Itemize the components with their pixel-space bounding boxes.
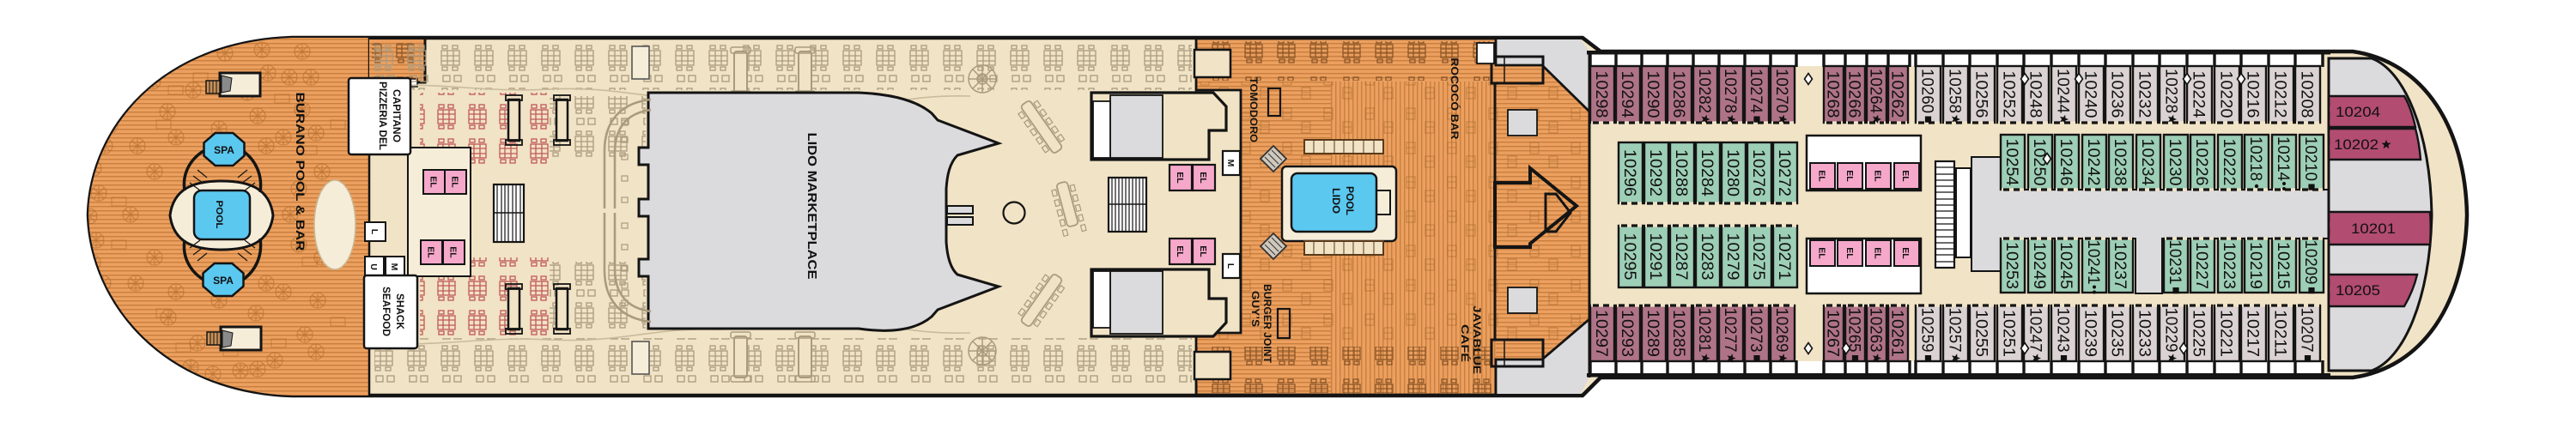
svg-text:10279: 10279 bbox=[1723, 233, 1741, 281]
svg-text:10271: 10271 bbox=[1775, 233, 1793, 281]
svg-text:10274: 10274 bbox=[1747, 69, 1765, 113]
svg-text:EL: EL bbox=[1175, 245, 1185, 257]
svg-text:10275: 10275 bbox=[1749, 233, 1767, 281]
svg-text:LIDO MARKETPLACE: LIDO MARKETPLACE bbox=[805, 132, 819, 280]
svg-text:10295: 10295 bbox=[1620, 233, 1638, 281]
svg-text:10241: 10241 bbox=[2084, 240, 2102, 285]
svg-text:10293: 10293 bbox=[1618, 310, 1636, 357]
svg-text:10226: 10226 bbox=[2192, 139, 2210, 186]
svg-text:LIDO: LIDO bbox=[1330, 188, 1340, 214]
svg-text:EL: EL bbox=[450, 176, 460, 188]
svg-text:10220: 10220 bbox=[2217, 71, 2235, 118]
svg-text:10289: 10289 bbox=[1643, 310, 1662, 357]
svg-text:L: L bbox=[1225, 263, 1236, 269]
svg-text:10209: 10209 bbox=[2301, 240, 2319, 285]
svg-text:10287: 10287 bbox=[1672, 233, 1690, 281]
svg-text:EL: EL bbox=[1817, 247, 1827, 259]
svg-text:10243: 10243 bbox=[2054, 308, 2072, 353]
svg-text:10216: 10216 bbox=[2244, 71, 2262, 118]
svg-text:10205: 10205 bbox=[2336, 282, 2380, 299]
svg-text:10207: 10207 bbox=[2298, 308, 2316, 353]
svg-text:10272: 10272 bbox=[1775, 149, 1793, 196]
svg-text:10268: 10268 bbox=[1824, 71, 1842, 118]
svg-text:EL: EL bbox=[1873, 247, 1883, 259]
svg-text:POOL: POOL bbox=[1344, 186, 1354, 215]
svg-text:10281: 10281 bbox=[1695, 308, 1713, 353]
svg-text:10219: 10219 bbox=[2246, 242, 2264, 289]
svg-text:10222: 10222 bbox=[2220, 139, 2238, 186]
svg-text:EL: EL bbox=[1873, 170, 1883, 182]
svg-text:10218: 10218 bbox=[2246, 136, 2264, 181]
svg-text:10256: 10256 bbox=[1972, 71, 1990, 118]
svg-text:10298: 10298 bbox=[1592, 71, 1610, 118]
svg-text:CAFÉ: CAFÉ bbox=[1459, 324, 1472, 362]
svg-text:10245: 10245 bbox=[2057, 242, 2075, 289]
svg-text:ROCOCÓ BAR: ROCOCÓ BAR bbox=[1449, 58, 1461, 140]
svg-text:10231: 10231 bbox=[2166, 240, 2184, 285]
svg-text:POOL: POOL bbox=[214, 201, 224, 229]
svg-text:10297: 10297 bbox=[1592, 310, 1610, 357]
svg-text:L: L bbox=[369, 229, 380, 235]
svg-text:10240: 10240 bbox=[2081, 71, 2099, 118]
svg-text:10212: 10212 bbox=[2271, 71, 2289, 118]
svg-text:10244: 10244 bbox=[2054, 69, 2072, 113]
svg-text:U: U bbox=[368, 263, 379, 270]
svg-text:CAPITANO: CAPITANO bbox=[391, 89, 403, 142]
svg-text:10258: 10258 bbox=[1946, 69, 1964, 113]
svg-text:10223: 10223 bbox=[2220, 242, 2238, 289]
svg-text:10210: 10210 bbox=[2301, 136, 2319, 181]
svg-text:SEAFOOD: SEAFOOD bbox=[380, 287, 392, 336]
svg-text:10267: 10267 bbox=[1824, 310, 1842, 357]
svg-text:10257: 10257 bbox=[1946, 308, 1964, 353]
svg-text:10286: 10286 bbox=[1669, 71, 1687, 118]
svg-text:EL: EL bbox=[1844, 247, 1855, 259]
svg-text:10242: 10242 bbox=[2084, 139, 2102, 186]
svg-text:10262: 10262 bbox=[1888, 71, 1906, 118]
svg-text:10273: 10273 bbox=[1747, 308, 1765, 353]
svg-text:10234: 10234 bbox=[2138, 139, 2156, 186]
svg-text:EL: EL bbox=[1900, 247, 1911, 259]
svg-text:10264: 10264 bbox=[1867, 69, 1885, 113]
svg-text:BURGER JOINT: BURGER JOINT bbox=[1261, 284, 1273, 364]
svg-text:10285: 10285 bbox=[1669, 310, 1687, 357]
svg-text:10247: 10247 bbox=[2026, 308, 2044, 353]
svg-text:BURANO POOL & BAR: BURANO POOL & BAR bbox=[294, 93, 307, 251]
svg-text:10214: 10214 bbox=[2274, 136, 2292, 181]
svg-text:10215: 10215 bbox=[2274, 242, 2292, 289]
svg-text:10259: 10259 bbox=[1918, 308, 1936, 353]
svg-text:10277: 10277 bbox=[1721, 308, 1739, 353]
svg-text:10296: 10296 bbox=[1620, 149, 1638, 196]
svg-text:10228: 10228 bbox=[2162, 69, 2180, 113]
svg-text:10235: 10235 bbox=[2108, 310, 2126, 357]
svg-text:10221: 10221 bbox=[2217, 310, 2235, 357]
svg-text:10232: 10232 bbox=[2136, 71, 2154, 118]
svg-text:10260: 10260 bbox=[1918, 69, 1936, 113]
svg-text:10230: 10230 bbox=[2166, 139, 2184, 186]
svg-text:10227: 10227 bbox=[2192, 242, 2210, 289]
svg-text:10237: 10237 bbox=[2111, 242, 2129, 289]
svg-text:M: M bbox=[389, 263, 399, 271]
svg-text:10266: 10266 bbox=[1845, 71, 1863, 118]
svg-text:10251: 10251 bbox=[2000, 310, 2018, 357]
svg-text:10254: 10254 bbox=[2002, 139, 2020, 186]
svg-text:PIZZERIA DEL: PIZZERIA DEL bbox=[377, 82, 389, 150]
svg-text:10276: 10276 bbox=[1749, 149, 1767, 196]
svg-text:10249: 10249 bbox=[2030, 242, 2048, 289]
svg-text:10252: 10252 bbox=[2000, 71, 2018, 118]
svg-text:JAVABLUE: JAVABLUE bbox=[1471, 305, 1483, 374]
svg-text:EL: EL bbox=[426, 246, 436, 258]
svg-text:10233: 10233 bbox=[2136, 310, 2154, 357]
svg-text:TOMODORO: TOMODORO bbox=[1248, 77, 1260, 142]
svg-text:EL: EL bbox=[1900, 170, 1911, 182]
svg-text:10288: 10288 bbox=[1672, 149, 1690, 196]
svg-text:10263: 10263 bbox=[1867, 308, 1885, 353]
svg-text:EL: EL bbox=[1198, 245, 1208, 257]
svg-text:10280: 10280 bbox=[1723, 149, 1741, 196]
svg-text:10253: 10253 bbox=[2002, 242, 2020, 289]
svg-text:10225: 10225 bbox=[2190, 310, 2208, 357]
svg-text:10261: 10261 bbox=[1888, 310, 1906, 357]
svg-text:M: M bbox=[1225, 160, 1236, 167]
svg-text:EL: EL bbox=[1844, 170, 1855, 182]
svg-text:10217: 10217 bbox=[2244, 310, 2262, 357]
svg-text:10208: 10208 bbox=[2298, 71, 2316, 118]
svg-text:10278: 10278 bbox=[1721, 69, 1739, 113]
svg-text:EL: EL bbox=[448, 246, 459, 258]
svg-text:10292: 10292 bbox=[1646, 149, 1664, 196]
svg-text:10202: 10202 bbox=[2334, 136, 2379, 153]
svg-text:10201: 10201 bbox=[2351, 221, 2396, 237]
svg-text:10269: 10269 bbox=[1772, 308, 1790, 353]
svg-text:SHACK: SHACK bbox=[394, 293, 406, 329]
svg-text:10211: 10211 bbox=[2271, 310, 2289, 357]
svg-text:EL: EL bbox=[1817, 170, 1827, 182]
svg-text:10236: 10236 bbox=[2108, 71, 2126, 118]
svg-text:10270: 10270 bbox=[1772, 69, 1790, 113]
svg-text:SPA: SPA bbox=[214, 144, 234, 156]
svg-text:10239: 10239 bbox=[2081, 310, 2099, 357]
svg-text:10238: 10238 bbox=[2111, 139, 2129, 186]
svg-text:10283: 10283 bbox=[1698, 233, 1716, 281]
svg-text:EL: EL bbox=[428, 176, 439, 188]
svg-text:10204: 10204 bbox=[2336, 104, 2380, 120]
svg-text:SPA: SPA bbox=[213, 275, 234, 287]
svg-text:10284: 10284 bbox=[1698, 149, 1716, 196]
svg-text:10290: 10290 bbox=[1643, 71, 1662, 118]
svg-text:10246: 10246 bbox=[2057, 139, 2075, 186]
svg-text:10224: 10224 bbox=[2190, 71, 2208, 118]
svg-text:10291: 10291 bbox=[1646, 233, 1664, 281]
svg-text:10255: 10255 bbox=[1972, 310, 1990, 357]
svg-text:EL: EL bbox=[1175, 172, 1185, 184]
svg-text:10229: 10229 bbox=[2162, 308, 2180, 353]
svg-text:EL: EL bbox=[1198, 172, 1208, 184]
svg-text:GUY’S: GUY’S bbox=[1249, 291, 1261, 327]
svg-text:10294: 10294 bbox=[1618, 71, 1636, 118]
svg-text:10282: 10282 bbox=[1695, 69, 1713, 113]
svg-text:10248: 10248 bbox=[2026, 71, 2044, 118]
